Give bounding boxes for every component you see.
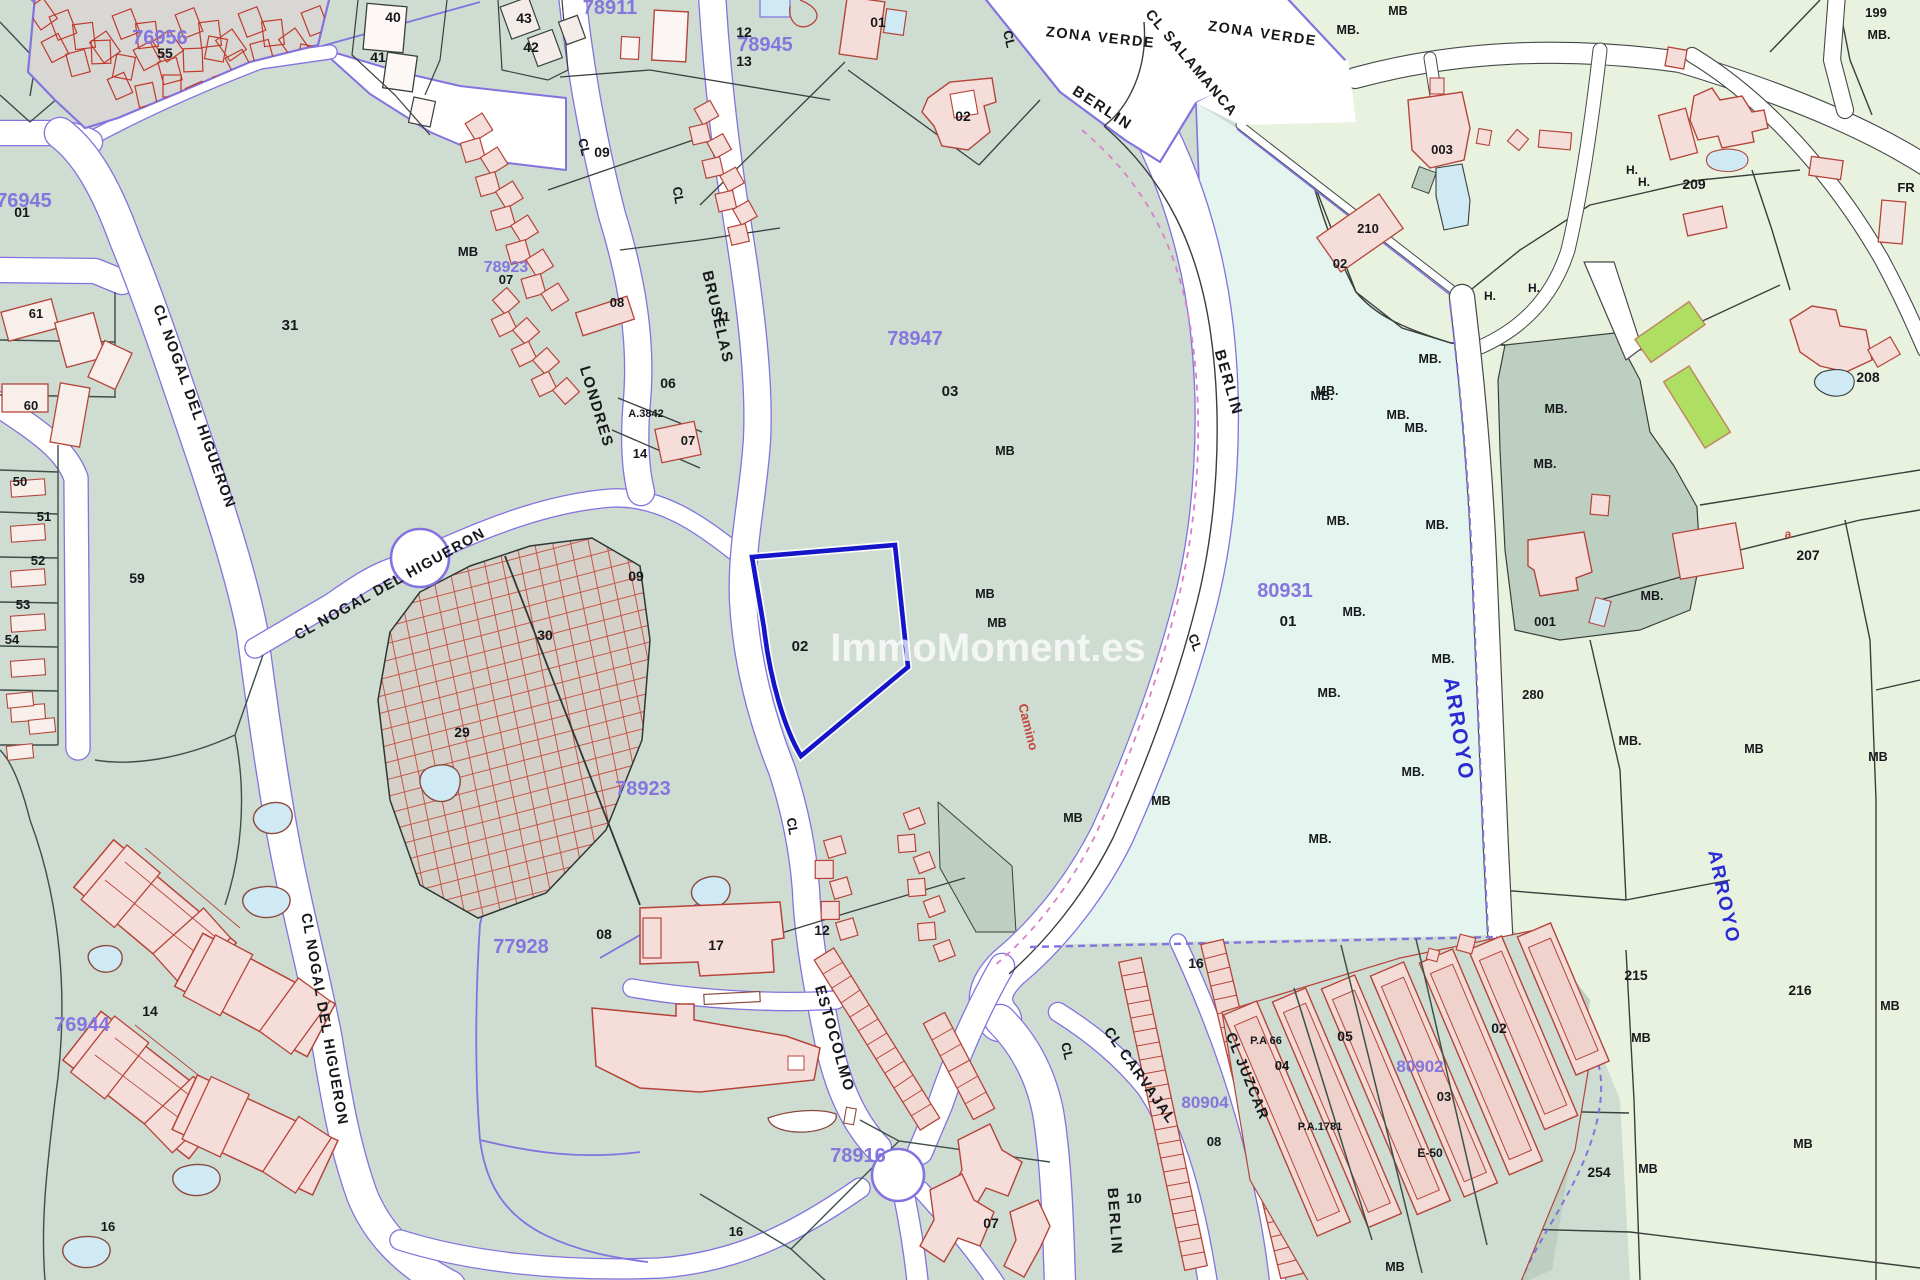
svg-text:208: 208 xyxy=(1856,369,1880,385)
svg-text:MB: MB xyxy=(1385,1260,1404,1274)
svg-text:001: 001 xyxy=(1534,614,1556,629)
svg-text:61: 61 xyxy=(29,306,43,321)
svg-text:02: 02 xyxy=(1491,1020,1507,1036)
svg-text:03: 03 xyxy=(1437,1089,1451,1104)
svg-text:02: 02 xyxy=(792,638,809,655)
svg-text:77928: 77928 xyxy=(493,936,549,958)
svg-text:07: 07 xyxy=(499,272,513,287)
svg-text:42: 42 xyxy=(523,39,539,55)
svg-text:MB.: MB. xyxy=(1426,518,1449,532)
svg-text:30: 30 xyxy=(537,627,553,643)
svg-text:78947: 78947 xyxy=(887,328,943,350)
svg-text:05: 05 xyxy=(1337,1028,1353,1044)
svg-text:50: 50 xyxy=(13,474,27,489)
svg-text:08: 08 xyxy=(596,926,612,942)
svg-text:10: 10 xyxy=(1126,1190,1142,1206)
svg-text:16: 16 xyxy=(1188,955,1204,971)
svg-text:H.: H. xyxy=(1626,163,1638,177)
svg-text:280: 280 xyxy=(1522,687,1544,702)
svg-text:MB: MB xyxy=(975,587,994,601)
svg-text:41: 41 xyxy=(370,49,386,65)
svg-text:12: 12 xyxy=(736,24,752,40)
svg-text:MB.: MB. xyxy=(1309,832,1332,846)
svg-text:78911: 78911 xyxy=(583,0,638,19)
svg-text:A.3842: A.3842 xyxy=(628,408,663,420)
svg-text:78923: 78923 xyxy=(615,778,671,800)
svg-text:16: 16 xyxy=(101,1219,115,1234)
svg-text:43: 43 xyxy=(516,10,532,26)
svg-text:MB: MB xyxy=(1868,750,1887,764)
svg-text:207: 207 xyxy=(1796,547,1820,563)
svg-text:P.A.1781: P.A.1781 xyxy=(1298,1121,1342,1133)
svg-text:54: 54 xyxy=(5,632,20,647)
svg-text:MB.: MB. xyxy=(1619,734,1642,748)
svg-text:03: 03 xyxy=(942,383,959,400)
svg-text:MB: MB xyxy=(1880,999,1899,1013)
svg-text:31: 31 xyxy=(282,317,299,334)
svg-text:MB: MB xyxy=(1631,1031,1650,1045)
svg-text:ImmoMoment.es: ImmoMoment.es xyxy=(830,626,1146,670)
svg-text:MB: MB xyxy=(995,444,1014,458)
svg-text:01: 01 xyxy=(1280,613,1297,630)
svg-text:80904: 80904 xyxy=(1181,1093,1229,1112)
svg-text:MB: MB xyxy=(1151,794,1170,808)
svg-text:216: 216 xyxy=(1788,982,1812,998)
svg-text:13: 13 xyxy=(736,53,752,69)
svg-text:a: a xyxy=(1785,527,1792,541)
svg-text:209: 209 xyxy=(1682,176,1706,192)
svg-text:P.A 66: P.A 66 xyxy=(1250,1035,1282,1047)
svg-text:17: 17 xyxy=(708,937,724,953)
svg-text:003: 003 xyxy=(1431,142,1453,157)
svg-text:MB.: MB. xyxy=(1327,514,1350,528)
svg-text:MB.: MB. xyxy=(1316,384,1339,398)
svg-text:08: 08 xyxy=(610,295,624,310)
svg-text:80931: 80931 xyxy=(1257,580,1313,602)
svg-text:06: 06 xyxy=(660,375,676,391)
svg-text:09: 09 xyxy=(628,568,644,584)
svg-text:52: 52 xyxy=(31,553,45,568)
svg-text:09: 09 xyxy=(594,144,610,160)
svg-text:MB.: MB. xyxy=(1868,28,1891,42)
svg-text:MB: MB xyxy=(1388,4,1407,18)
svg-text:MB.: MB. xyxy=(1402,765,1425,779)
svg-text:CL: CL xyxy=(784,816,802,836)
svg-text:210: 210 xyxy=(1357,221,1379,236)
svg-text:40: 40 xyxy=(385,9,401,25)
svg-text:254: 254 xyxy=(1587,1164,1611,1180)
svg-text:H.: H. xyxy=(1638,175,1650,189)
svg-text:FR: FR xyxy=(1897,180,1915,195)
svg-text:199: 199 xyxy=(1865,5,1887,20)
svg-text:02: 02 xyxy=(1333,256,1347,271)
svg-text:H.: H. xyxy=(1484,289,1496,303)
svg-text:04: 04 xyxy=(1275,1058,1290,1073)
svg-text:MB: MB xyxy=(1744,742,1763,756)
svg-text:H.: H. xyxy=(1528,281,1540,295)
svg-text:MB: MB xyxy=(1638,1162,1657,1176)
svg-text:14: 14 xyxy=(633,446,648,461)
svg-text:29: 29 xyxy=(454,724,470,740)
svg-text:MB.: MB. xyxy=(1545,402,1568,416)
svg-text:80902: 80902 xyxy=(1396,1057,1443,1076)
svg-text:CL: CL xyxy=(670,185,688,205)
svg-text:51: 51 xyxy=(37,509,51,524)
svg-text:MB.: MB. xyxy=(1405,421,1428,435)
svg-text:MB: MB xyxy=(1063,811,1082,825)
svg-text:60: 60 xyxy=(24,398,38,413)
svg-text:08: 08 xyxy=(1207,1134,1221,1149)
svg-text:MB.: MB. xyxy=(1387,408,1410,422)
svg-text:01: 01 xyxy=(14,204,30,220)
svg-text:16: 16 xyxy=(729,1224,743,1239)
svg-text:215: 215 xyxy=(1624,967,1648,983)
svg-text:MB.: MB. xyxy=(1343,605,1366,619)
svg-text:MB.: MB. xyxy=(1419,352,1442,366)
svg-text:02: 02 xyxy=(955,108,971,124)
svg-text:07: 07 xyxy=(681,433,695,448)
svg-text:12: 12 xyxy=(814,922,830,938)
svg-text:MB.: MB. xyxy=(1432,652,1455,666)
svg-text:MB: MB xyxy=(1793,1137,1812,1151)
svg-text:MB.: MB. xyxy=(1534,457,1557,471)
svg-text:59: 59 xyxy=(129,570,145,586)
svg-text:78916: 78916 xyxy=(830,1145,886,1167)
svg-text:E-50: E-50 xyxy=(1417,1146,1443,1160)
svg-text:MB: MB xyxy=(458,244,478,259)
svg-text:53: 53 xyxy=(16,597,30,612)
svg-text:55: 55 xyxy=(157,45,173,61)
svg-text:76944: 76944 xyxy=(54,1014,110,1036)
svg-text:14: 14 xyxy=(142,1003,158,1019)
svg-text:MB.: MB. xyxy=(1337,23,1360,37)
svg-text:11: 11 xyxy=(716,309,730,324)
svg-text:07: 07 xyxy=(983,1215,999,1231)
svg-text:MB.: MB. xyxy=(1641,589,1664,603)
svg-text:MB.: MB. xyxy=(1318,686,1341,700)
svg-text:01: 01 xyxy=(870,14,886,30)
